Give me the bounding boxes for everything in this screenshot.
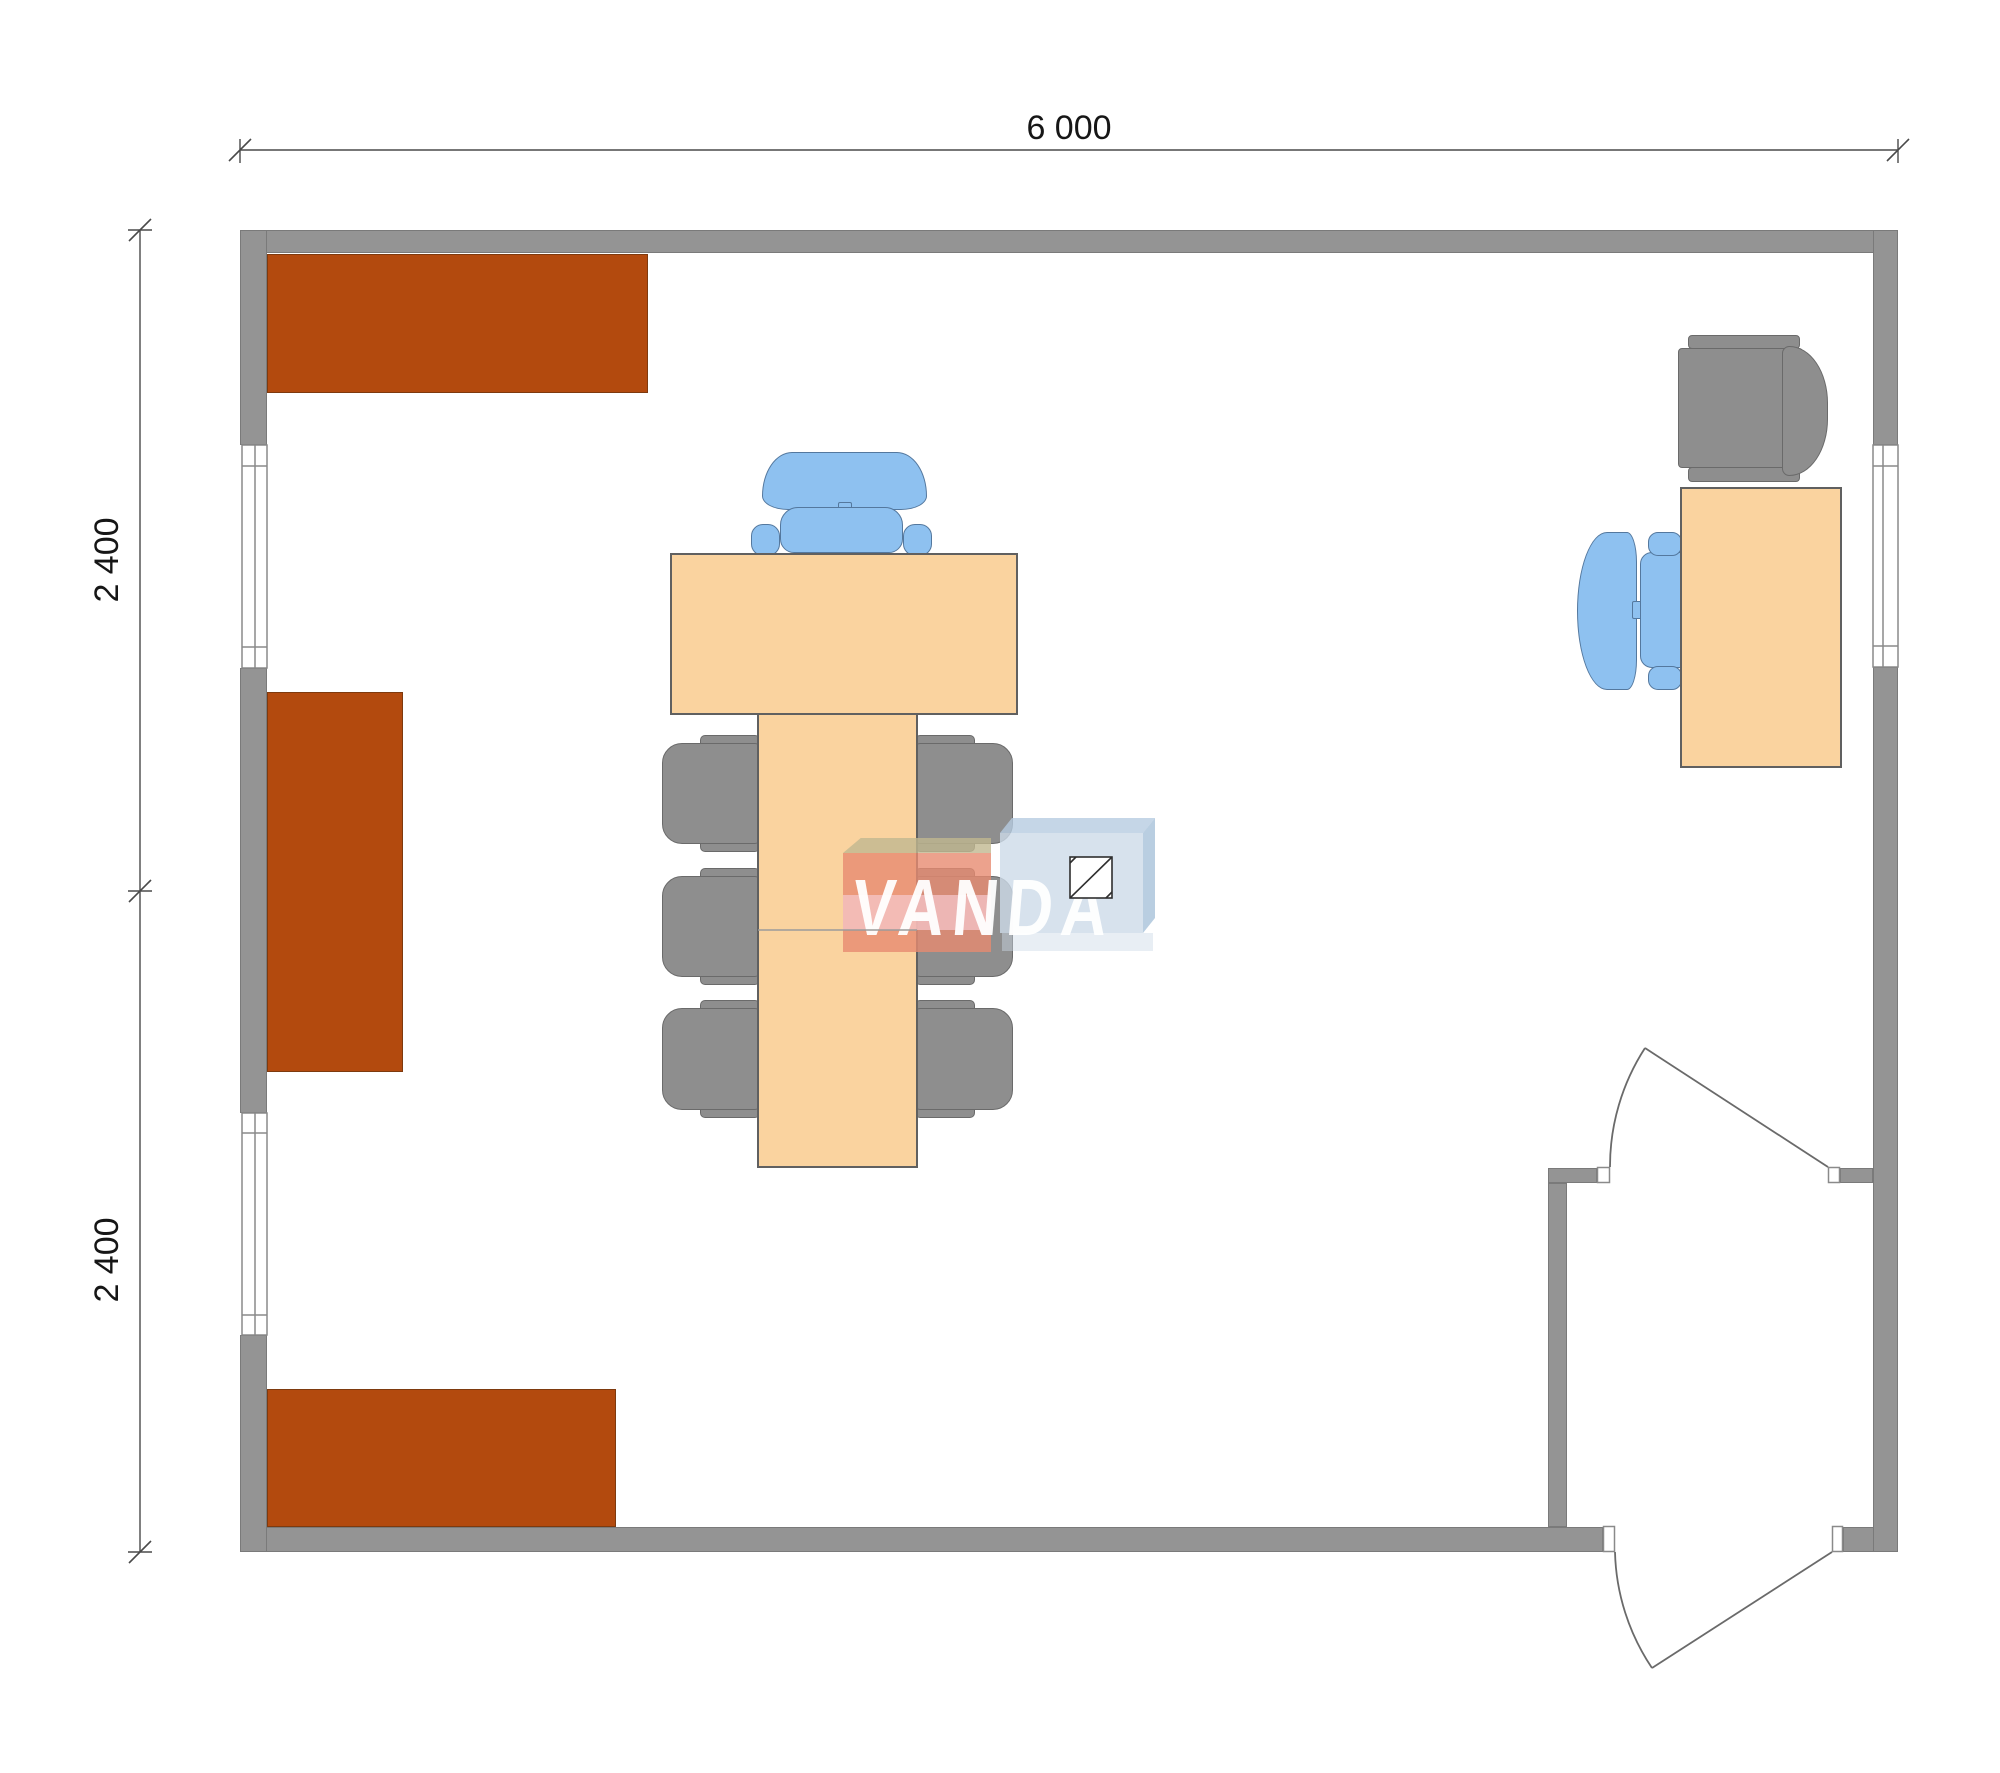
executive-chair <box>751 452 932 556</box>
conference-chair <box>662 1000 760 1118</box>
chair-seat <box>662 876 760 977</box>
floor-plan: VANDA 6 000 2 400 2 400 <box>0 0 2000 1773</box>
watermark-bottom-band <box>1002 933 1153 951</box>
wall-left-lower-segment <box>240 1335 267 1552</box>
dimension-top: 6 000 <box>229 109 1909 163</box>
door-jamb <box>1829 1168 1840 1183</box>
wall-top <box>240 230 1898 253</box>
conference-chair <box>662 735 760 852</box>
chair-seat <box>915 743 1013 844</box>
exterior-door-swing <box>1615 1552 1832 1668</box>
cabinet-top-left <box>267 254 648 393</box>
chair-armrest <box>1648 666 1682 690</box>
cabinet-middle-left <box>267 692 403 1072</box>
dimension-label-height-upper: 2 400 <box>88 517 126 602</box>
chair-armrest <box>751 524 780 556</box>
partition-wall-horizontal-right <box>1840 1168 1873 1183</box>
window-left-lower <box>242 1113 267 1335</box>
window-left-upper <box>242 445 267 668</box>
chair-backrest <box>1577 532 1637 690</box>
cabinet-bottom-left <box>267 1389 616 1527</box>
chair-backrest <box>780 507 903 553</box>
wall-right-lower-segment <box>1873 667 1898 1552</box>
wall-left-middle-segment <box>240 668 267 1113</box>
dimension-left: 2 400 2 400 <box>88 219 152 1563</box>
partition-wall-vertical <box>1548 1183 1567 1527</box>
interior-door-swing <box>1610 1048 1828 1167</box>
office-desk <box>1680 487 1842 768</box>
wall-left-upper-segment <box>240 230 267 445</box>
conference-chair <box>662 868 760 985</box>
dimension-label-height-lower: 2 400 <box>88 1217 126 1302</box>
watermark-side-face-right <box>1143 818 1155 933</box>
chair-seat <box>915 876 1013 977</box>
chair-seat <box>915 1008 1013 1110</box>
conference-desk <box>670 553 1018 715</box>
conference-chair <box>915 735 1013 852</box>
window-right <box>1873 445 1898 667</box>
chair-seat <box>662 743 760 844</box>
desk-chair <box>1577 530 1690 692</box>
conference-chair <box>915 1000 1013 1118</box>
wall-right-upper-segment <box>1873 230 1898 445</box>
ceiling-light-symbol <box>1070 857 1112 898</box>
wall-bottom-left-segment <box>240 1527 1603 1552</box>
chair-armrest <box>1648 532 1682 556</box>
watermark-front-face-right <box>1000 833 1143 933</box>
door-jamb <box>1598 1168 1610 1183</box>
lounge-armchair <box>1678 335 1828 482</box>
conference-chair <box>915 868 1013 985</box>
chair-armrest <box>1688 335 1800 349</box>
watermark-top-face-right <box>1000 818 1155 833</box>
chair-backrest <box>1782 346 1828 476</box>
door-jamb <box>1604 1527 1615 1552</box>
dimension-label-width: 6 000 <box>1026 109 1111 147</box>
door-jamb <box>1833 1527 1843 1552</box>
partition-wall-horizontal-left <box>1548 1168 1597 1183</box>
chair-seat <box>662 1008 760 1110</box>
conference-table <box>757 710 918 1168</box>
chair-armrest <box>903 524 932 556</box>
